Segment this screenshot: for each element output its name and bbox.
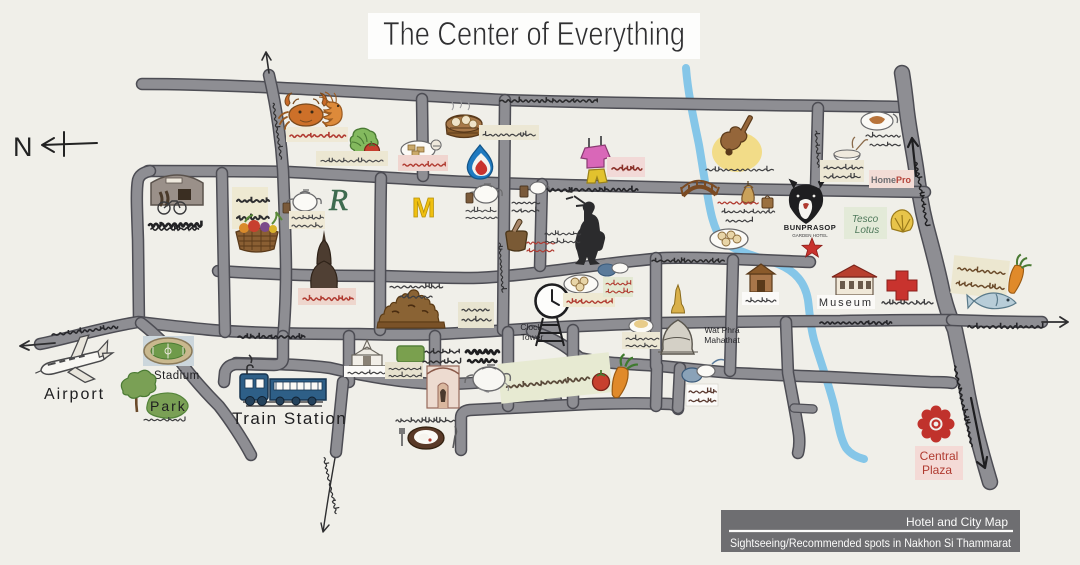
svg-text:GARDEN HOTEL: GARDEN HOTEL bbox=[792, 233, 828, 238]
svg-text:BUNPRASOP: BUNPRASOP bbox=[784, 223, 836, 232]
svg-text:Plaza: Plaza bbox=[922, 463, 952, 477]
svg-text:Tesco: Tesco bbox=[852, 214, 879, 225]
svg-text:Museum: Museum bbox=[819, 297, 873, 309]
svg-text:Stadium: Stadium bbox=[154, 370, 200, 382]
svg-text:R: R bbox=[328, 182, 348, 217]
svg-text:Mahathat: Mahathat bbox=[704, 335, 740, 345]
svg-text:Train Station: Train Station bbox=[232, 409, 347, 428]
svg-text:Tower: Tower bbox=[521, 332, 544, 342]
svg-text:HomePro: HomePro bbox=[871, 175, 912, 185]
svg-text:Hotel and City Map: Hotel and City Map bbox=[906, 515, 1008, 529]
svg-text:Wat Phra: Wat Phra bbox=[704, 325, 739, 335]
svg-text:Park: Park bbox=[150, 398, 187, 414]
svg-text:The Center of Everything: The Center of Everything bbox=[383, 15, 685, 52]
svg-text:Clock: Clock bbox=[520, 322, 542, 332]
svg-text:Lotus: Lotus bbox=[855, 225, 879, 236]
svg-text:M: M bbox=[412, 192, 435, 223]
svg-text:Airport: Airport bbox=[44, 386, 105, 403]
svg-text:Sightseeing/Recommended spots: Sightseeing/Recommended spots in Nakhon … bbox=[730, 537, 1012, 550]
svg-text:Central: Central bbox=[920, 449, 959, 463]
svg-text:N: N bbox=[13, 132, 33, 162]
